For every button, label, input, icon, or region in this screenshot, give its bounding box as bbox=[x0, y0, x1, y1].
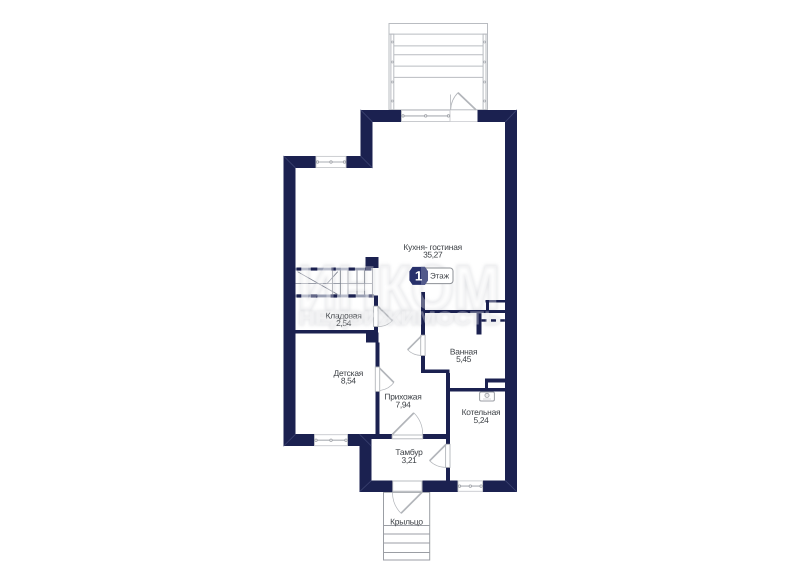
svg-text:НЕДВИЖИМОСТЬ: НЕДВИЖИМОСТЬ bbox=[299, 309, 501, 330]
svg-text:1: 1 bbox=[415, 269, 423, 284]
svg-text:8,54: 8,54 bbox=[341, 376, 357, 386]
svg-text:Крыльцо: Крыльцо bbox=[390, 517, 423, 527]
svg-text:Этаж: Этаж bbox=[430, 271, 450, 280]
svg-text:5,24: 5,24 bbox=[474, 415, 490, 425]
svg-text:7,94: 7,94 bbox=[396, 400, 412, 410]
svg-text:3,21: 3,21 bbox=[402, 455, 418, 465]
svg-text:5,45: 5,45 bbox=[456, 354, 472, 364]
